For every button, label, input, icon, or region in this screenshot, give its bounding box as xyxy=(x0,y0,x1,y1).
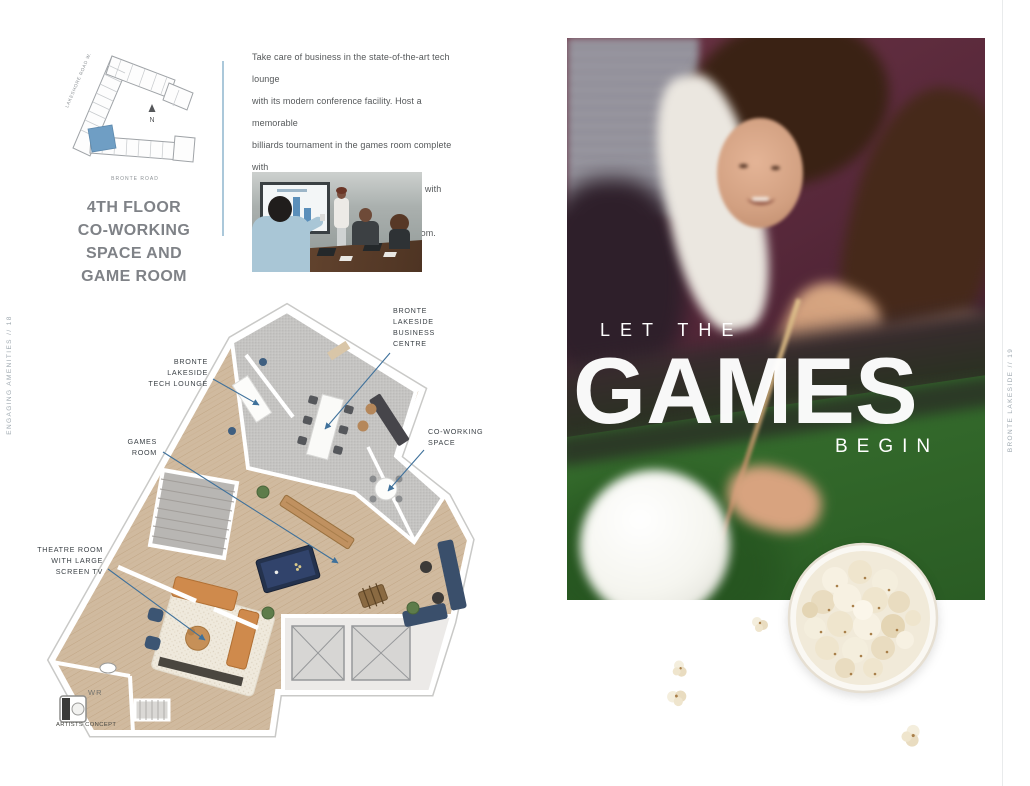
page-right: LET THE GAMES BEGIN xyxy=(565,0,1030,786)
photo-eye xyxy=(739,164,748,168)
floorplan-label-washroom: WR xyxy=(88,688,103,697)
floor-plan-illustration xyxy=(0,0,565,786)
photo-woman-face xyxy=(717,118,803,228)
page-edge-line xyxy=(1002,0,1003,786)
hero-photo-billiards: LET THE GAMES BEGIN xyxy=(567,38,985,600)
floorplan-label-co-working: CO-WORKING SPACE xyxy=(428,426,483,448)
floorplan-caption: ARTISTS CONCEPT xyxy=(56,722,116,728)
photo-smile xyxy=(752,197,769,201)
brochure-spread: ENGAGING AMENITIES // 18 xyxy=(0,0,1030,786)
popcorn-scatter-piece xyxy=(658,678,696,716)
popcorn-bowl xyxy=(785,540,941,696)
floorplan-label-tech-lounge: BRONTE LAKESIDE TECH LOUNGE xyxy=(118,356,208,389)
photo-eye xyxy=(771,166,780,170)
hero-tagline-text: BEGIN xyxy=(835,436,939,458)
floorplan-label-games-room: GAMES ROOM xyxy=(95,436,157,458)
floorplan-label-business-centre: BRONTE LAKESIDE BUSINESS CENTRE xyxy=(393,305,435,349)
popcorn-scatter-piece xyxy=(892,716,932,756)
page-left: ENGAGING AMENITIES // 18 xyxy=(0,0,565,786)
popcorn-scatter-piece xyxy=(748,612,772,636)
floorplan-label-theatre-room: THEATRE ROOM WITH LARGE SCREEN TV xyxy=(13,544,103,577)
hero-headline-text: GAMES xyxy=(573,344,918,438)
floorplan-stairwell xyxy=(150,470,237,558)
page-edge-label-right: BRONTE LAKESIDE // 19 xyxy=(1006,325,1016,475)
floorplan-elevators xyxy=(283,616,452,692)
